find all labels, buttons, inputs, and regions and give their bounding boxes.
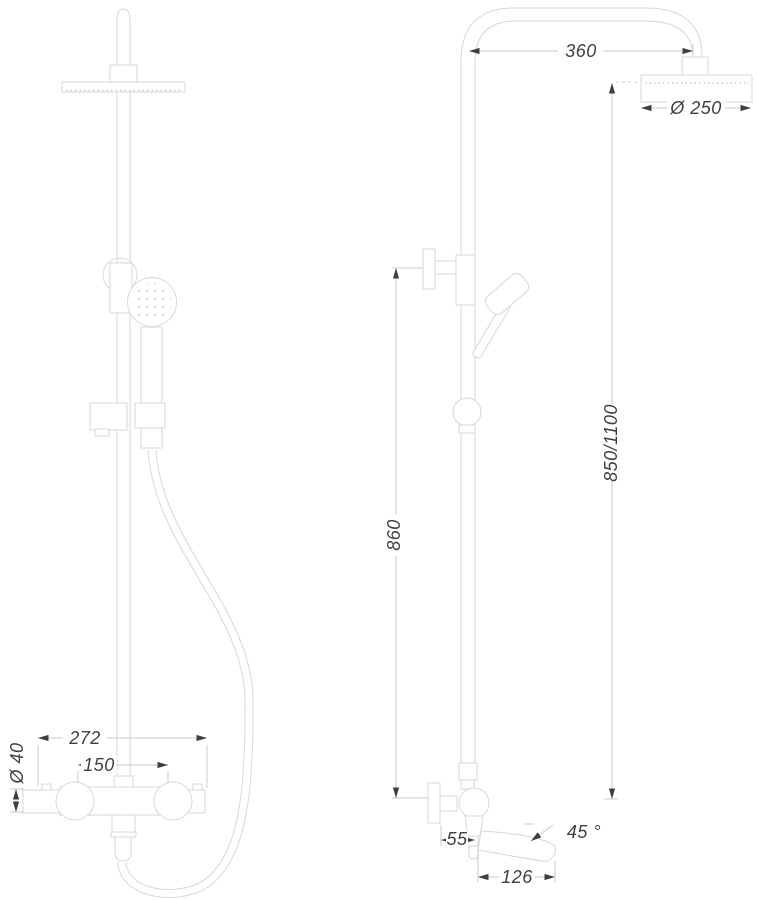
- dim-850-1100-label: 850/1100: [601, 404, 621, 482]
- dim-d250-label: Ø 250: [669, 98, 722, 118]
- wall-bracket-side: [423, 249, 475, 305]
- diverter-knob: [453, 398, 481, 426]
- dim-d40-label: Ø 40: [7, 742, 27, 784]
- mixer-right-knob: [154, 782, 192, 820]
- head-connector: [110, 65, 137, 82]
- shower-drawing-svg: 272 150 Ø 40: [0, 0, 757, 900]
- mixer-left-knob: [56, 782, 94, 820]
- hose-outlet-cap: [115, 837, 131, 861]
- front-view: 272 150 Ø 40: [7, 9, 249, 894]
- dim-arm-reach: 360: [469, 41, 693, 61]
- dim-360-label: 360: [565, 41, 597, 61]
- mixer-body-side: [459, 788, 489, 818]
- riser-arm-outer: [461, 8, 702, 781]
- dim-55-label: 55: [446, 829, 468, 849]
- mixer-riser-joint: [114, 776, 133, 788]
- mixer-wall-flange: [428, 783, 440, 823]
- dim-272-label: 272: [68, 728, 101, 748]
- hand-shower-nozzles: [133, 283, 172, 322]
- head-connector-side: [682, 57, 708, 75]
- tub-spout: [478, 831, 556, 861]
- mixer-left-union: [23, 790, 60, 813]
- hand-shower-side: [472, 271, 532, 359]
- shower-hose: [122, 450, 249, 894]
- dim-bracket-height: 860: [384, 268, 428, 798]
- side-view: 360 Ø 250 850/1100 860: [384, 8, 752, 887]
- mixer-front: [23, 776, 205, 861]
- riser-pipe: [117, 9, 130, 788]
- dim-150-label: 150: [83, 755, 115, 775]
- technical-drawing-canvas: 272 150 Ø 40: [0, 0, 757, 900]
- riser-arm-inner: [475, 21, 693, 781]
- dim-45-label: 45 °: [567, 822, 601, 842]
- mixer-outlet: [112, 815, 135, 832]
- dim-riser-height: 850/1100: [601, 82, 640, 799]
- dim-860-label: 860: [384, 519, 404, 551]
- dim-126-label: 126: [501, 867, 533, 887]
- hand-shower-handle: [141, 327, 162, 448]
